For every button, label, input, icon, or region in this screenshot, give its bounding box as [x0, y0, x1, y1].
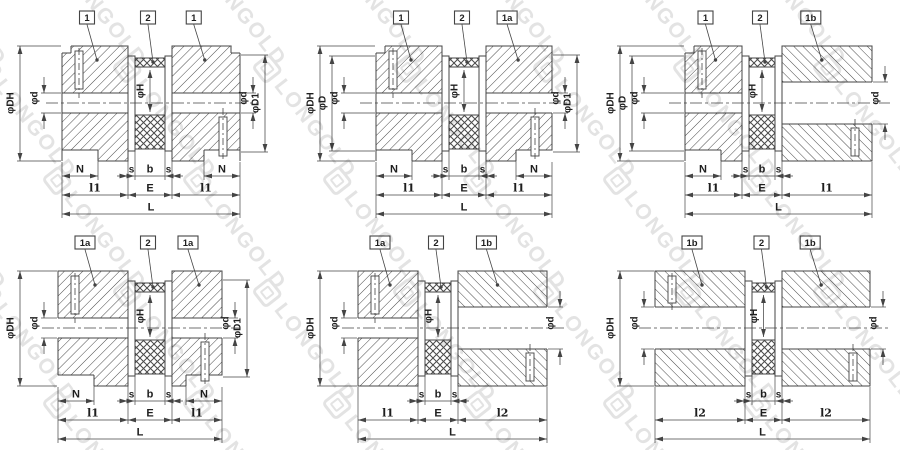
- callout-label: 2: [145, 238, 150, 249]
- dimension-label: φDH: [606, 317, 617, 339]
- callout-label: 1b: [686, 238, 697, 249]
- center-bore-dim-label: φH: [749, 309, 760, 323]
- hub-type-1a-right: [172, 271, 223, 387]
- spider-element: φH: [128, 56, 172, 151]
- coupling-diagram-1-2-1a: φHφDHφDφdφdφD1NNsbsl1El1L121a: [300, 0, 600, 225]
- dimension-label: φd: [30, 91, 41, 104]
- dimension-label: N: [530, 164, 538, 176]
- dimension-label: s: [776, 165, 782, 176]
- center-bore-dim-label: φH: [748, 84, 759, 98]
- dimension-label: N: [76, 164, 84, 176]
- diagram-cell-1: φHφDHφdφdφD1NNsbsl1El1L121: [0, 0, 300, 225]
- hub-type-1-left: [375, 45, 442, 161]
- callout-2: 2: [753, 11, 768, 64]
- dimension-label: φD: [318, 96, 329, 110]
- callout-label: 1b: [805, 238, 816, 249]
- dimension-label: s: [419, 390, 425, 401]
- dimension-label: l2: [694, 407, 706, 420]
- dimension-label: l1: [708, 182, 720, 195]
- callout-label: 1: [398, 13, 404, 24]
- dimension-label: φd: [30, 316, 41, 329]
- dimension-label: E: [146, 408, 153, 420]
- callout-label: 2: [759, 238, 764, 249]
- diagram-cell-5: φHφDHφdφdsbsl1El2L1a21b: [300, 225, 600, 450]
- dimension-label: φd: [551, 91, 562, 104]
- coupling-diagram-1b-2-1b: φHφDHφdφdsbsl2El2L1b21b: [600, 225, 900, 450]
- diagram-cell-3: φHφDHφDφdφdNsbsl1El1L121b: [600, 0, 900, 225]
- spider-element: φH: [418, 281, 458, 376]
- dimension-label: φd: [546, 316, 557, 329]
- hub-type-1-right: [172, 45, 242, 161]
- coupling-diagram-1-2-1b: φHφDHφDφdφdNsbsl1El1L121b: [600, 0, 900, 225]
- dimension-label: φd: [630, 91, 641, 104]
- center-bore-dim-label: φH: [450, 84, 461, 98]
- dimension-label: l1: [200, 182, 212, 195]
- dimension-label: φd: [871, 91, 882, 104]
- dimension-label: φd: [239, 91, 250, 104]
- hub-type-1b-left: [655, 271, 746, 386]
- callout-label: 1a: [502, 13, 513, 24]
- hub-type-1b-right: [782, 271, 871, 386]
- dimension-label: b: [147, 389, 154, 401]
- spider-element: φH: [128, 281, 172, 376]
- dimension-label: φDH: [306, 92, 317, 114]
- coupling-diagram-1-2-1: φHφDHφdφdφD1NNsbsl1El1L121: [0, 0, 300, 225]
- callout-2: 2: [429, 236, 444, 289]
- center-bore-dim-label: φH: [136, 84, 147, 98]
- dimension-label: φDH: [6, 92, 17, 114]
- dimension-label: φD: [618, 96, 629, 110]
- dimension-label: φd: [330, 91, 341, 104]
- dimension-label: L: [461, 202, 468, 214]
- dimension-label: φDH: [306, 317, 317, 339]
- hub-type-1a-left: [358, 271, 419, 386]
- spider-element: φH: [742, 56, 782, 151]
- dimension-label: φd: [221, 316, 232, 329]
- hub-type-1-left: [61, 45, 128, 161]
- dimension-label: E: [760, 408, 767, 420]
- dimension-label: E: [460, 183, 467, 195]
- dimension-label: φD1: [563, 93, 574, 113]
- dimension-label: s: [129, 165, 135, 176]
- coupling-diagram-1a-2-1a: φHφDHφdφdφD1NNsbsl1El1L1a21a: [0, 225, 300, 450]
- dimension-label: E: [146, 183, 153, 195]
- dimension-label: l1: [382, 407, 394, 420]
- dimension-label: l2: [820, 407, 832, 420]
- dimension-label: b: [435, 389, 442, 401]
- dimension-label: s: [166, 390, 172, 401]
- hub-type-1b-right: [782, 46, 873, 161]
- callout-2: 2: [754, 236, 769, 289]
- dimension-label: φd: [330, 316, 341, 329]
- diagram-cell-4: φHφDHφdφdφD1NNsbsl1El1L1a21a: [0, 225, 300, 450]
- callout-label: 1: [84, 13, 90, 24]
- dimension-label: N: [218, 164, 226, 176]
- callout-label: 2: [433, 238, 438, 249]
- dimension-label: l1: [191, 407, 203, 420]
- hub-type-1-left: [684, 45, 742, 161]
- callout-label: 1a: [80, 238, 91, 249]
- dimension-label: L: [449, 427, 456, 439]
- dimension-label: b: [461, 164, 468, 176]
- dimension-label: s: [452, 390, 458, 401]
- dimension-label: L: [775, 202, 782, 214]
- dimension-label: s: [443, 165, 449, 176]
- spider-element: φH: [745, 281, 782, 376]
- dimension-label: E: [434, 408, 441, 420]
- hub-type-1a-left: [57, 271, 128, 387]
- dimension-label: l2: [497, 407, 509, 420]
- dimension-label: l1: [89, 182, 101, 195]
- dimension-label: L: [137, 427, 144, 439]
- dimension-label: b: [759, 164, 766, 176]
- dimension-label: φDH: [6, 317, 17, 339]
- dimension-label: φd: [630, 316, 641, 329]
- dimension-label: s: [743, 165, 749, 176]
- dimension-label: N: [390, 164, 398, 176]
- spider-element: φH: [442, 56, 486, 151]
- dimension-label: N: [200, 389, 208, 401]
- dimension-label: b: [147, 164, 154, 176]
- dimension-label: l1: [513, 182, 525, 195]
- callout-label: 1: [191, 13, 197, 24]
- dimension-label: b: [760, 389, 767, 401]
- dimension-label: φD1: [233, 318, 244, 338]
- hub-type-1a-right: [486, 46, 553, 162]
- dimension-label: s: [480, 165, 486, 176]
- dimension-label: N: [699, 164, 707, 176]
- dimension-label: L: [148, 202, 155, 214]
- center-bore-dim-label: φH: [136, 309, 147, 323]
- dimension-label: s: [776, 390, 782, 401]
- diagram-grid: φHφDHφdφdφD1NNsbsl1El1L121φHφDHφDφdφdφD1…: [0, 0, 900, 450]
- callout-2: 2: [141, 11, 156, 64]
- dimension-label: L: [759, 427, 766, 439]
- dimension-label: l1: [403, 182, 415, 195]
- callout-label: 2: [459, 13, 464, 24]
- callout-label: 2: [757, 13, 762, 24]
- callout-label: 1a: [183, 238, 194, 249]
- diagram-cell-2: φHφDHφDφdφdφD1NNsbsl1El1L121a: [300, 0, 600, 225]
- callout-2: 2: [141, 236, 156, 289]
- center-bore-dim-label: φH: [424, 309, 435, 323]
- coupling-diagram-1a-2-1b: φHφDHφdφdsbsl1El2L1a21b: [300, 225, 600, 450]
- dimension-label: s: [746, 390, 752, 401]
- callout-label: 1b: [805, 13, 816, 24]
- dimension-label: E: [758, 183, 765, 195]
- technical-drawing-sheet: φHφDHφdφdφD1NNsbsl1El1L121φHφDHφDφdφdφD1…: [0, 0, 900, 450]
- dimension-label: N: [72, 389, 80, 401]
- callout-label: 1: [703, 13, 709, 24]
- dimension-label: l1: [87, 407, 99, 420]
- dimension-label: s: [166, 165, 172, 176]
- dimension-label: s: [129, 390, 135, 401]
- dimension-label: φD1: [251, 93, 262, 113]
- dimension-label: φd: [869, 316, 880, 329]
- diagram-cell-6: φHφDHφdφdsbsl2El2L1b21b: [600, 225, 900, 450]
- callout-label: 1b: [481, 238, 492, 249]
- callout-label: 2: [145, 13, 150, 24]
- callout-2: 2: [455, 11, 470, 64]
- hub-type-1b-right: [458, 271, 548, 386]
- dimension-label: l1: [821, 182, 833, 195]
- callout-label: 1a: [375, 238, 386, 249]
- dimension-label: φDH: [606, 92, 617, 114]
